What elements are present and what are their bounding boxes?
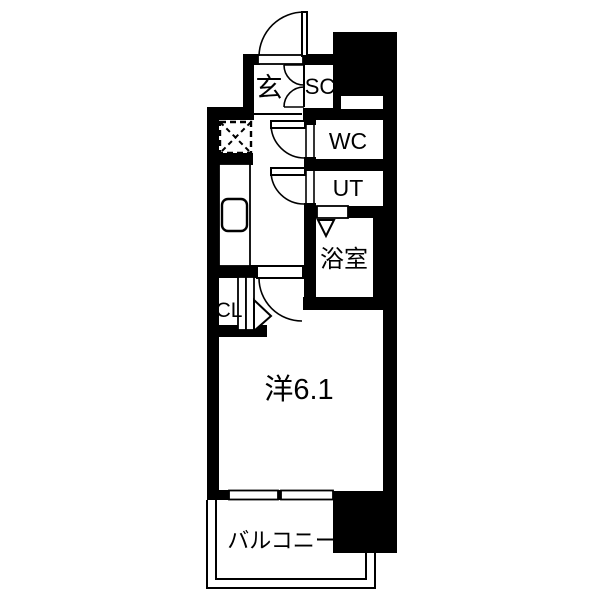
wc-door-leaf [271,121,305,128]
kitchen-sink [222,199,247,231]
entrance-threshold [258,55,303,64]
closet-door-panel-2 [246,277,254,330]
wall-bathroom-left [304,203,316,310]
kitchen-fixtures [219,122,251,266]
wall-above-wc [303,108,397,120]
label-genkan: 玄 [256,73,283,103]
room-window [229,491,333,500]
wall-kitchen-bottom [207,265,256,278]
bathroom-door-tab [317,206,348,218]
wall-bathroom-right [373,218,397,298]
ut-door-leaf [271,168,305,175]
entrance-door-leaf [302,12,307,56]
room-door-leaf [257,266,303,278]
label-utility: UT [333,175,364,201]
wall-block-bottom-right [333,491,397,553]
label-western-room: 洋6.1 [264,373,333,406]
label-closet: CL [216,299,243,322]
meter-box-notch [341,96,383,109]
wall-wc-ut-divider [305,159,383,171]
wall-block-top-right [333,32,397,97]
floor-plan-canvas: 玄 SC WC UT 浴室 CL 洋6.1 バルコニー [0,0,600,600]
window-pane-right [281,491,333,500]
label-bathroom: 浴室 [320,246,368,273]
window-pane-left [229,491,278,500]
label-shoe-closet: SC [305,74,336,99]
label-balcony: バルコニー [227,528,337,553]
wall-bathroom-bottom [303,297,397,310]
label-toilet: WC [329,128,367,154]
floor-plan: 玄 SC WC UT 浴室 CL 洋6.1 バルコニー [0,0,600,600]
background [0,0,600,600]
